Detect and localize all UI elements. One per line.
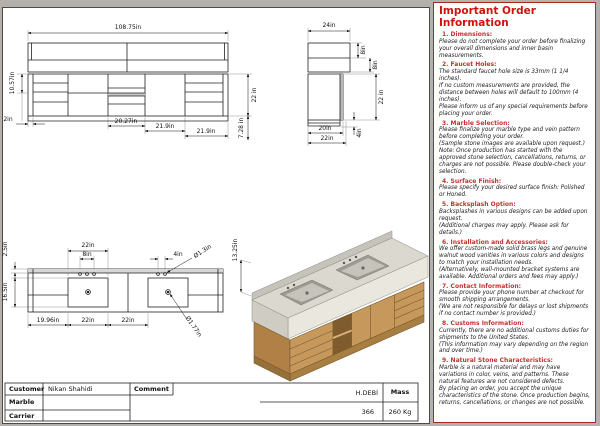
- order-sheet-page: { "colors": { "accent_red": "#c23230", "…: [0, 0, 600, 426]
- panel-section-8: 9. Natural Stone Characteristics: Marble…: [439, 357, 590, 406]
- panel-section-4: 5. Backsplash Option: Backsplashes in va…: [439, 201, 590, 236]
- dim-plan-hole-span: 8in: [82, 252, 91, 258]
- panel-section-6: 7. Contact Information: Please provide y…: [439, 283, 590, 318]
- dim-side-base-height: 4in: [357, 128, 363, 137]
- dim-plan-left-offset: 19.96in: [37, 318, 60, 324]
- section-body: The standard faucet hole size is 33mm (1…: [439, 69, 590, 118]
- panel-section-3: 4. Surface Finish: Please specify your d…: [439, 178, 590, 199]
- dim-side-band2: 8in: [373, 60, 379, 69]
- dim-front-w3: 21.9in: [197, 129, 216, 135]
- section-heading: 1. Dimensions:: [439, 31, 590, 39]
- dim-front-w2: 21.9in: [156, 124, 175, 130]
- flow-value: 366: [362, 408, 374, 416]
- important-order-information-panel: Important Order Information 1. Dimension…: [433, 2, 596, 423]
- dim-plan-gap-dim: 22in: [121, 318, 134, 324]
- marble-label: Marble: [9, 398, 34, 406]
- customer-value: Nikan Shahidi: [48, 385, 93, 393]
- panel-section-2: 3. Marble Selection: Please finalize you…: [439, 120, 590, 176]
- section-body: Please finalize your marble type and vei…: [439, 127, 590, 176]
- mass-value: 260 Kg: [389, 408, 412, 416]
- dim-front-lower-right: 7.28 in: [239, 118, 245, 139]
- section-body: We offer custom-made solid brass legs an…: [439, 246, 590, 281]
- panel-section-7: 8. Customs Information: Currently, there…: [439, 320, 590, 355]
- section-heading: 3. Marble Selection:: [439, 120, 590, 128]
- section-body: Please do not complete your order before…: [439, 39, 590, 60]
- dim-plan-back-offset: 2.5in: [3, 241, 9, 256]
- section-body: Currently, there are no additional custo…: [439, 328, 590, 356]
- panel-section-5: 6. Installation and Accessories: We offe…: [439, 239, 590, 281]
- dim-front-overhang: 2in: [3, 117, 12, 123]
- section-body: Please provide your phone number at chec…: [439, 290, 590, 318]
- dim-plan-basin-depth: 16.5in: [3, 283, 9, 302]
- dim-side-band1: 8in: [361, 45, 367, 54]
- section-heading: 6. Installation and Accessories:: [439, 239, 590, 247]
- dim-front-left-height: 10.57in: [10, 72, 16, 95]
- section-heading: 5. Backsplash Option:: [439, 201, 590, 209]
- panel-title: Important Order Information: [439, 6, 590, 29]
- dim-side-depth-total: 22in: [320, 136, 333, 142]
- section-heading: 8. Customs Information:: [439, 320, 590, 328]
- customer-label: Customer: [9, 385, 44, 393]
- dim-side-cab-height: 22 in: [379, 89, 385, 104]
- section-body: Marble is a natural material and may hav…: [439, 365, 590, 407]
- comment-label: Comment: [134, 385, 169, 393]
- dim-plan-hole-gap: 4in: [173, 252, 182, 258]
- section-heading: 9. Natural Stone Characteristics:: [439, 357, 590, 365]
- panel-section-0: 1. Dimensions: Please do not complete yo…: [439, 31, 590, 59]
- dim-side-depth-cabinet: 20in: [318, 126, 331, 132]
- dim-front-total-width: 108.75in: [115, 25, 141, 31]
- section-body: Backsplashes in various designs can be a…: [439, 209, 590, 237]
- section-heading: 4. Surface Finish:: [439, 178, 590, 186]
- drawing-sheet: [2, 7, 430, 424]
- dim-side-top-width: 24in: [322, 23, 335, 29]
- section-body: Please specify your desired surface fini…: [439, 185, 590, 199]
- flow-label: H.DEBİ: [356, 389, 378, 397]
- dim-front-w1: 20.27in: [115, 119, 138, 125]
- carrier-label: Carrier: [9, 412, 34, 420]
- dim-iso-total-height: 13.25in: [233, 239, 239, 262]
- dim-front-right-height: 22 in: [252, 87, 258, 102]
- dim-plan-basin-dim: 22in: [81, 318, 94, 324]
- mass-label: Mass: [391, 388, 410, 396]
- section-heading: 7. Contact Information:: [439, 283, 590, 291]
- dim-plan-basin-width: 22in: [81, 243, 94, 249]
- section-heading: 2. Faucet Holes:: [439, 61, 590, 69]
- panel-section-1: 2. Faucet Holes: The standard faucet hol…: [439, 61, 590, 117]
